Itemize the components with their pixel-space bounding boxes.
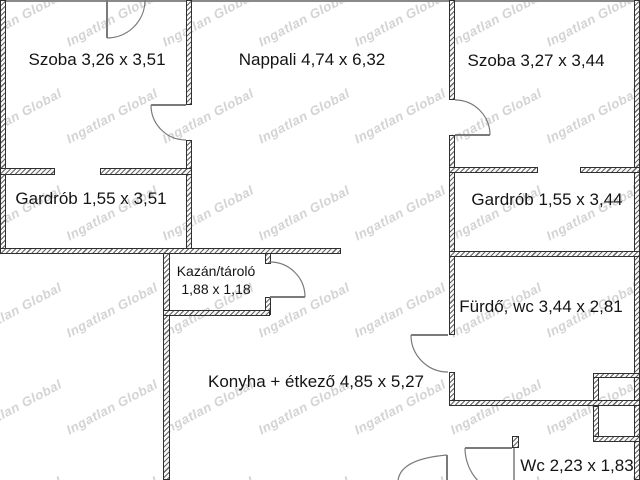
watermark-text: Ingatlan Global — [448, 0, 545, 49]
watermark-text: Ingatlan Global — [256, 0, 353, 49]
top-edge-wall — [0, 0, 640, 2]
wall — [186, 140, 192, 254]
watermark-text: Ingatlan Global — [160, 86, 257, 147]
wall — [449, 167, 538, 173]
wall — [449, 400, 640, 406]
wall — [186, 0, 192, 105]
wall — [0, 168, 55, 175]
watermark-text: Ingatlan Global — [256, 183, 353, 244]
wall — [163, 310, 270, 316]
wall — [449, 135, 455, 335]
room-label-konyha: Konyha + étkező 4,85 x 5,27 — [208, 372, 424, 392]
wall — [634, 0, 640, 480]
watermark-text: Ingatlan Global — [0, 280, 64, 341]
watermark-text: Ingatlan Global — [256, 474, 353, 480]
watermark-text: Ingatlan Global — [160, 474, 257, 480]
watermark-text: Ingatlan Global — [256, 86, 353, 147]
watermark-text: Ingatlan Global — [0, 474, 64, 480]
watermark-text: Ingatlan Global — [448, 86, 545, 147]
room-label-kazan: Kazán/tároló — [177, 263, 256, 279]
room-label-szoba2: Szoba 3,27 x 3,44 — [467, 51, 604, 71]
watermark-text: Ingatlan Global — [352, 0, 449, 49]
watermark-text: Ingatlan Global — [0, 86, 64, 147]
watermark-text: Ingatlan Global — [352, 86, 449, 147]
room-label-gardrob2: Gardrób 1,55 x 3,44 — [471, 190, 622, 210]
wall — [0, 248, 341, 254]
watermark-text: Ingatlan Global — [544, 86, 640, 147]
watermark-text: Ingatlan Global — [0, 0, 64, 49]
wall — [100, 168, 192, 175]
watermark-text: Ingatlan Global — [352, 280, 449, 341]
wall — [0, 0, 6, 254]
watermark-text: Ingatlan Global — [352, 474, 449, 480]
room-label-szoba1: Szoba 3,26 x 3,51 — [28, 50, 165, 70]
room-label-kazan-size: 1,88 x 1,18 — [181, 281, 250, 297]
watermark-text: Ingatlan Global — [160, 183, 257, 244]
watermark-text: Ingatlan Global — [64, 86, 161, 147]
watermark-text: Ingatlan Global — [544, 377, 640, 438]
room-label-furdo: Fürdő, wc 3,44 x 2,81 — [459, 297, 622, 317]
watermark-text: Ingatlan Global — [0, 377, 64, 438]
wall — [593, 373, 640, 378]
watermark-layer: Ingatlan GlobalIngatlan GlobalIngatlan G… — [0, 0, 640, 480]
room-label-nappali: Nappali 4,74 x 6,32 — [239, 50, 386, 70]
watermark-text: Ingatlan Global — [64, 474, 161, 480]
watermark-text: Ingatlan Global — [544, 0, 640, 49]
watermark-text: Ingatlan Global — [64, 377, 161, 438]
watermark-text: Ingatlan Global — [64, 0, 161, 49]
wall — [449, 251, 640, 257]
wall — [449, 0, 455, 100]
watermark-text: Ingatlan Global — [352, 183, 449, 244]
wall — [163, 248, 170, 480]
floor-plan: Ingatlan GlobalIngatlan GlobalIngatlan G… — [0, 0, 640, 480]
watermark-text: Ingatlan Global — [64, 280, 161, 341]
wall — [580, 167, 640, 173]
wall — [593, 436, 640, 442]
watermark-text: Ingatlan Global — [160, 0, 257, 49]
room-label-wc: Wc 2,23 x 1,83 — [520, 456, 633, 476]
watermark-text: Ingatlan Global — [448, 377, 545, 438]
room-label-gardrob1: Gardrób 1,55 x 3,51 — [15, 189, 166, 209]
wall — [512, 436, 519, 448]
